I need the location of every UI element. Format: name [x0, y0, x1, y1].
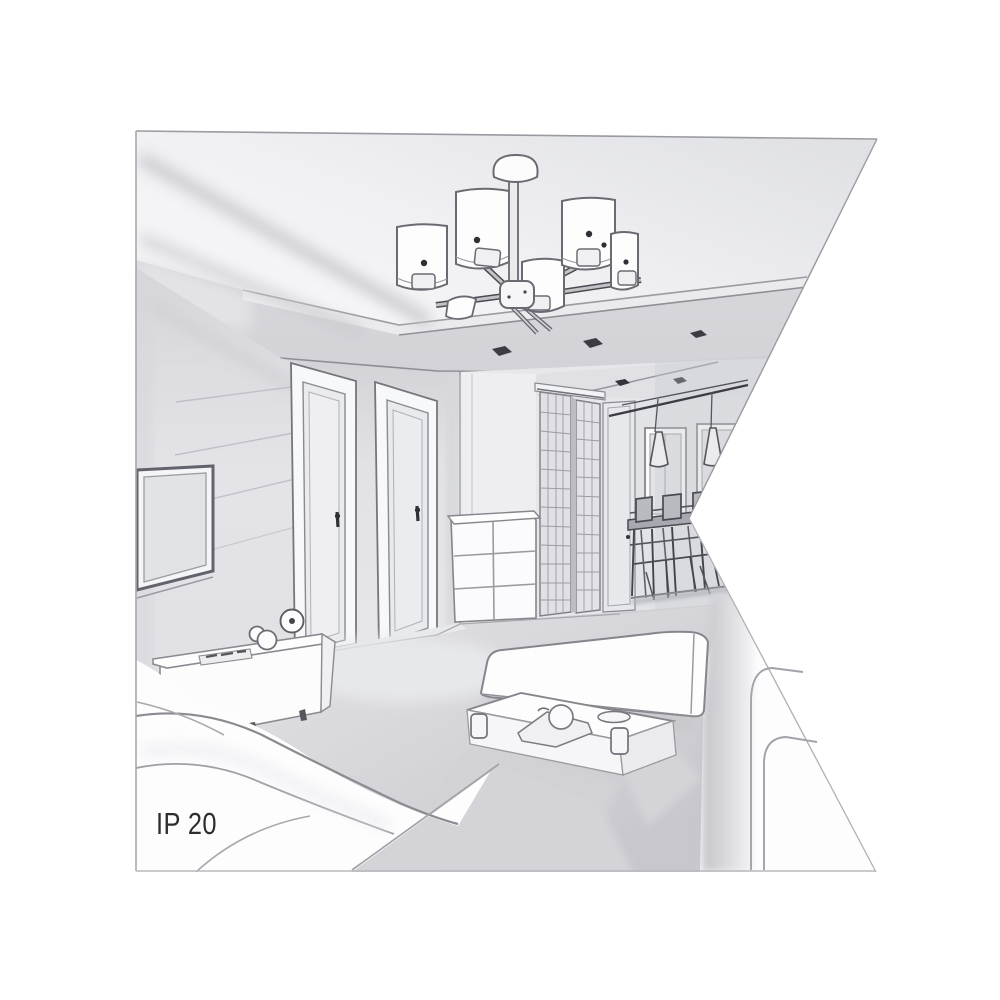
- svg-text:IP 20: IP 20: [156, 807, 217, 842]
